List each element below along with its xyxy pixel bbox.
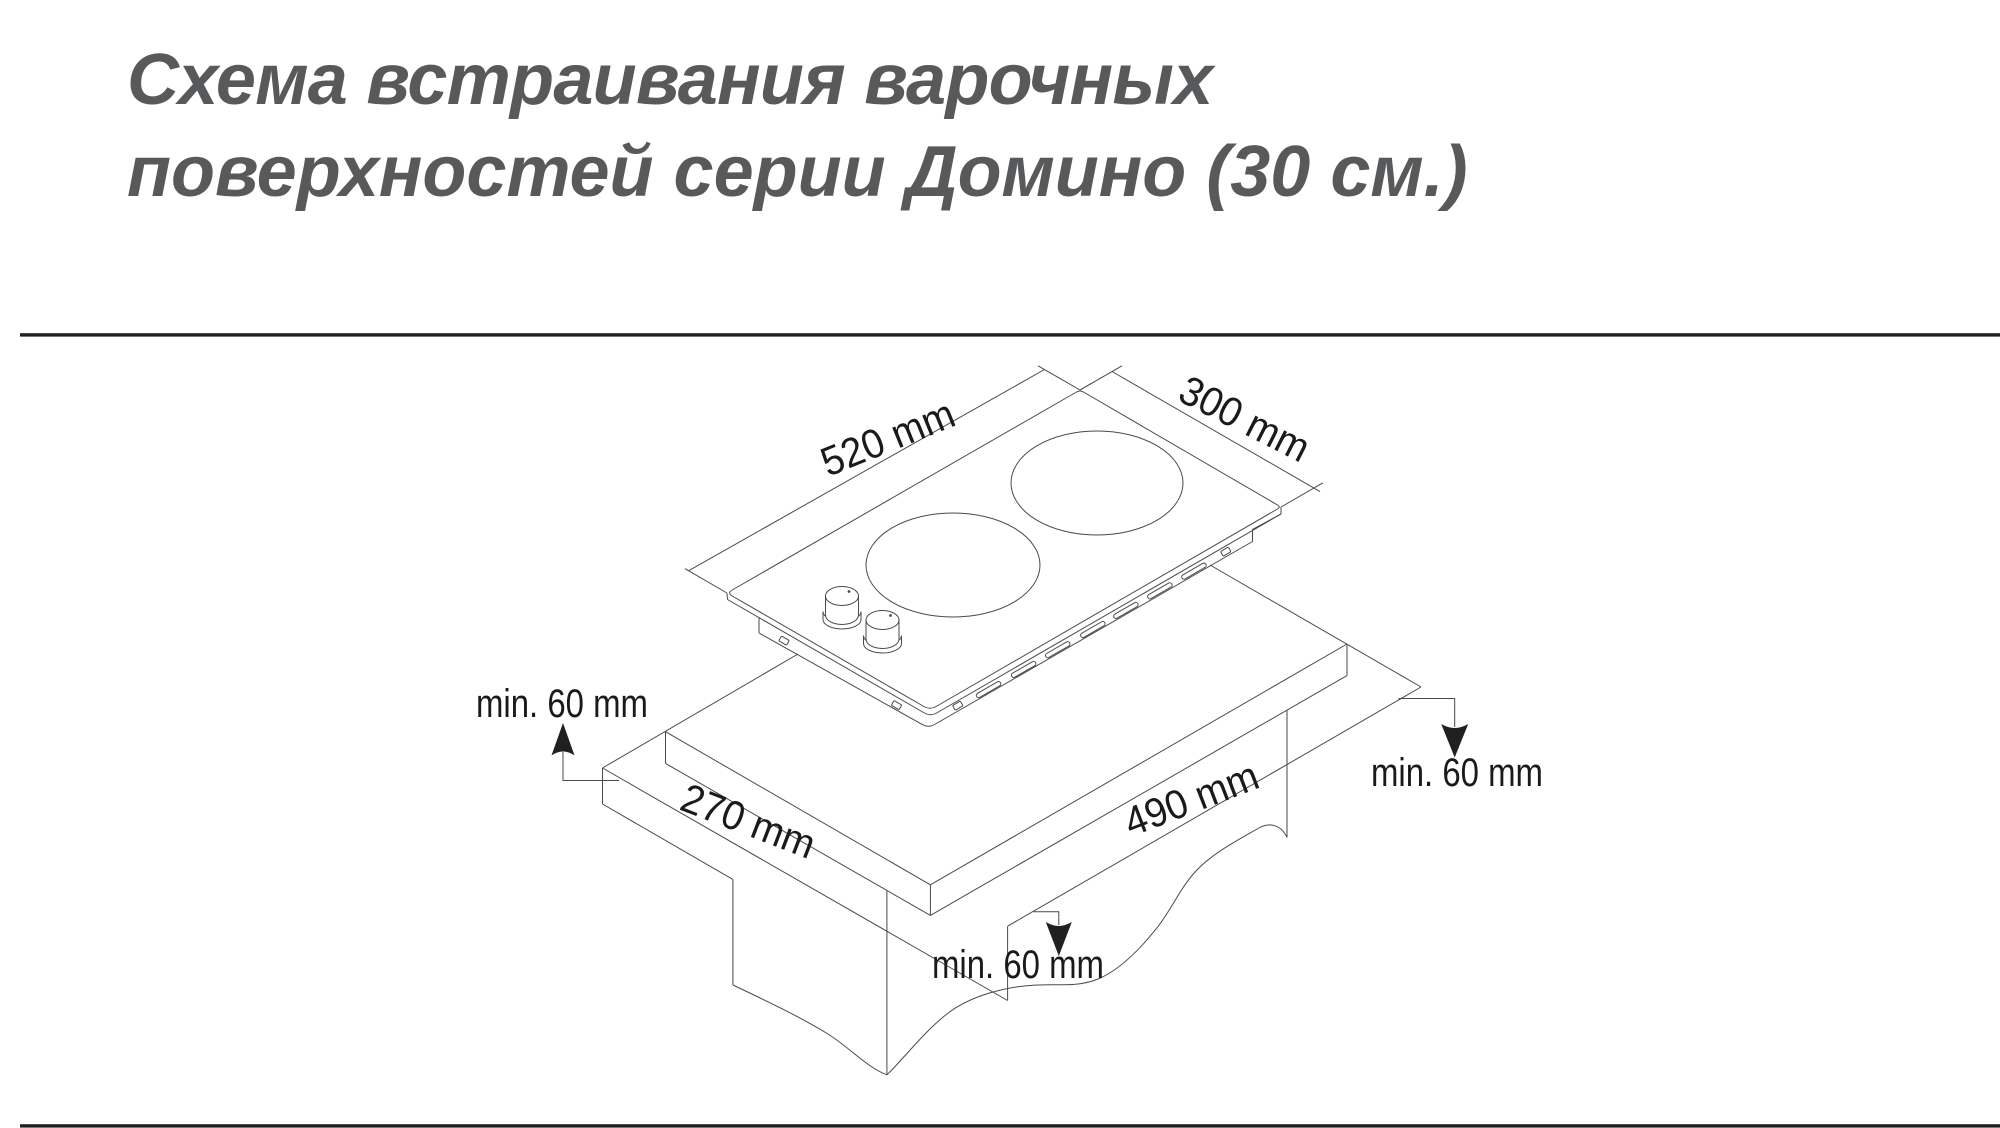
svg-text:min. 60 mm: min. 60 mm	[932, 943, 1104, 987]
svg-text:поверхностей серии Домино (30: поверхностей серии Домино (30 см.)	[127, 132, 1468, 212]
svg-text:min. 60 mm: min. 60 mm	[476, 682, 648, 726]
svg-text:min. 60 mm: min. 60 mm	[1371, 751, 1543, 795]
svg-text:Схема встраивания варочных: Схема встраивания варочных	[127, 40, 1216, 120]
